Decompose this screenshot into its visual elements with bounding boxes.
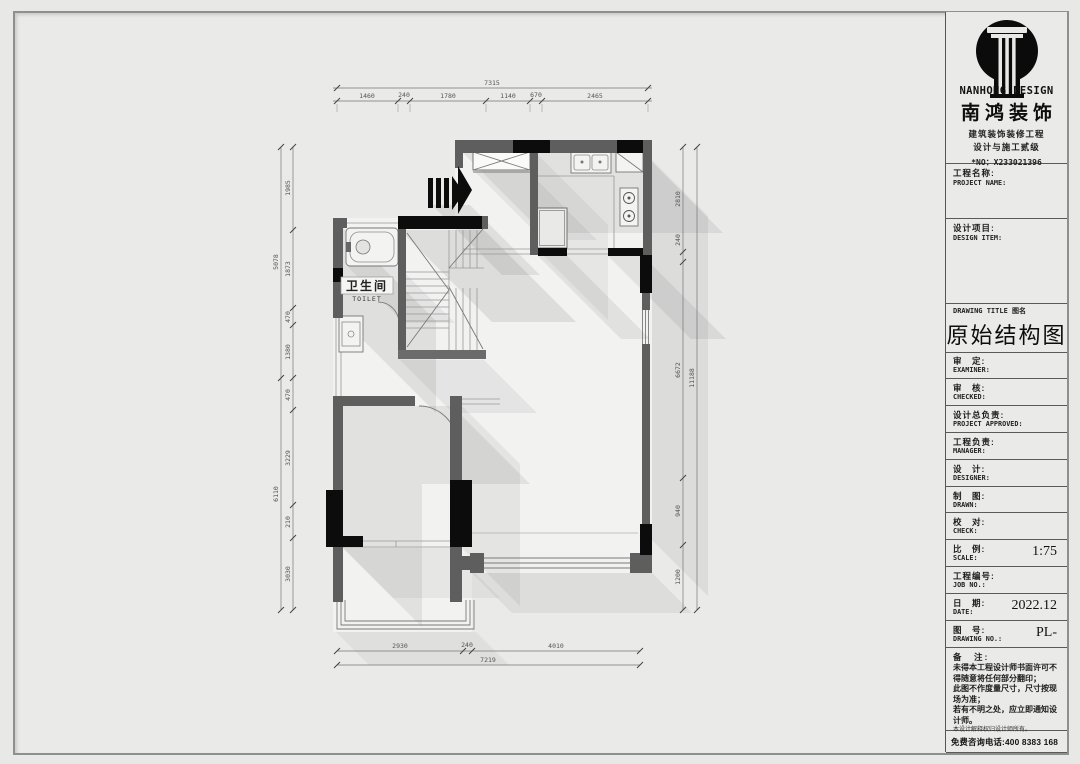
- dim-label: 670: [530, 91, 542, 99]
- design-item-section: 设计项目: DESIGN ITEM:: [946, 218, 1067, 304]
- row-drawn: 制 图: DRAWN:: [946, 487, 1067, 514]
- brand-name-cn: 南鸿装饰: [946, 98, 1067, 125]
- row-label-en: SCALE:: [953, 554, 978, 562]
- row-project-approved: 设计总负责: PROJECT APPROVED:: [946, 406, 1067, 433]
- row-job-no: 工程编号: JOB NO.:: [946, 567, 1067, 594]
- row-label-en: PROJECT APPROVED:: [953, 420, 1023, 428]
- brand-cert-line1: 建筑装饰装修工程: [946, 128, 1067, 140]
- design-item-label-en: DESIGN ITEM:: [953, 234, 1002, 242]
- row-label-en: DESIGNER:: [953, 474, 990, 482]
- notes-body: 未得本工程设计师书面许可不得随意将任何部分翻印； 此图不作度量尺寸，尺寸按现场为…: [953, 663, 1063, 735]
- dim-label: 1780: [440, 92, 456, 100]
- row-scale: 比 例: SCALE: 1:75: [946, 540, 1067, 567]
- dim-label: 5078: [272, 254, 280, 270]
- dim-label: 2465: [587, 92, 603, 100]
- row-label-en: CHECKED:: [953, 393, 986, 401]
- dim-label: 2810: [674, 191, 682, 207]
- row-label-en: MANAGER:: [953, 447, 986, 455]
- row-label-en: DRAWING NO.:: [953, 635, 1002, 643]
- row-examiner: 审 定: EXAMINER:: [946, 352, 1067, 379]
- row-label-en: JOB NO.:: [953, 581, 986, 589]
- dim-label: 240: [674, 234, 682, 246]
- row-label-en: EXAMINER:: [953, 366, 990, 374]
- dimension-left: 5078 6110 1985 1873 470 1380 470 3229 21…: [272, 144, 296, 613]
- row-value-date: 2022.12: [1012, 598, 1058, 614]
- corner-cabinet: [616, 152, 643, 172]
- dim-label: 7315: [484, 79, 500, 87]
- design-item-label-cn: 设计项目:: [953, 222, 995, 234]
- notes-section: 备 注: 未得本工程设计师书面许可不得随意将任何部分翻印； 此图不作度量尺寸，尺…: [946, 648, 1067, 731]
- dim-label: 6110: [272, 486, 280, 502]
- row-value-drawing-no: PL-: [1036, 625, 1057, 641]
- drawing-title-section: DRAWING TITLE 图名 原始结构图: [946, 303, 1067, 353]
- dim-label: 240: [461, 641, 473, 649]
- hotline-number: 免费咨询电话:400 8383 168: [951, 736, 1058, 748]
- bathtub: [346, 228, 398, 266]
- dim-label: 940: [674, 505, 682, 517]
- kitchen-cabinet: [537, 208, 567, 248]
- row-label-en: CHECK:: [953, 527, 978, 535]
- dim-label: 6672: [674, 362, 682, 378]
- drawing-title: 原始结构图: [946, 318, 1067, 350]
- dimension-top: 7315 1460 240 1780 1140 670 2465: [333, 79, 652, 112]
- title-block: NANHONG DESIGN 南鸿装饰 建筑装饰装修工程 设计与施工贰级 *NO…: [945, 12, 1067, 752]
- kitchen-sink: [571, 152, 611, 173]
- brand-cert-line2: 设计与施工贰级: [946, 141, 1067, 153]
- note-line: 此图不作度量尺寸，尺寸按现场为准；: [953, 684, 1063, 705]
- flue-box: [473, 152, 530, 172]
- dim-label: 1380: [284, 344, 292, 360]
- row-label-en: DRAWN:: [953, 501, 978, 509]
- row-manager: 工程负责: MANAGER:: [946, 433, 1067, 460]
- dim-label: 1200: [674, 569, 682, 585]
- brand-name-en: NANHONG DESIGN: [946, 85, 1067, 97]
- dim-label: 240: [398, 91, 410, 99]
- dim-label: 1873: [284, 261, 292, 277]
- room-label-en: TOILET: [352, 295, 381, 303]
- notes-title: 备 注:: [953, 651, 989, 663]
- dim-label: 1985: [284, 180, 292, 196]
- note-line: 未得本工程设计师书面许可不得随意将任何部分翻印；: [953, 663, 1063, 684]
- drawing-title-label: DRAWING TITLE 图名: [953, 306, 1026, 316]
- brand-section: NANHONG DESIGN 南鸿装饰 建筑装饰装修工程 设计与施工贰级 *NO…: [946, 12, 1067, 164]
- row-check: 校 对: CHECK:: [946, 513, 1067, 540]
- row-designer: 设 计: DESIGNER:: [946, 460, 1067, 487]
- dim-label: 1140: [500, 92, 516, 100]
- bathroom-vanity: [339, 316, 363, 352]
- title-block-rows: 审 定: EXAMINER: 审 核: CHECKED: 设计总负责: PROJ…: [946, 352, 1067, 648]
- dim-label: 7219: [480, 656, 496, 664]
- drawing-sheet: 卫生间 TOILET 7315 1460 240 1780 1140 670 2…: [0, 0, 1080, 764]
- dim-label: 11188: [688, 368, 696, 388]
- dim-label: 470: [284, 389, 292, 401]
- project-name-label-en: PROJECT NAME:: [953, 179, 1006, 187]
- row-value-scale: 1:75: [1032, 544, 1057, 560]
- dim-label: 210: [284, 516, 292, 528]
- hotline-section: 免费咨询电话:400 8383 168: [946, 730, 1067, 753]
- dim-label: 470: [284, 311, 292, 323]
- floor-plan: 卫生间 TOILET 7315 1460 240 1780 1140 670 2…: [0, 0, 945, 764]
- project-name-section: 工程名称: PROJECT NAME:: [946, 163, 1067, 219]
- row-label-en: DATE:: [953, 608, 973, 616]
- dim-label: 3030: [284, 566, 292, 582]
- note-line: 若有不明之处，应立即通知设计师。: [953, 705, 1063, 726]
- room-label-cn: 卫生间: [346, 278, 388, 293]
- row-date: 日 期: DATE: 2022.12: [946, 594, 1067, 621]
- row-checked: 审 核: CHECKED:: [946, 379, 1067, 406]
- dim-label: 1460: [359, 92, 375, 100]
- dim-label: 3229: [284, 450, 292, 466]
- dim-label: 2930: [392, 642, 408, 650]
- gas-stove: [620, 188, 638, 226]
- dim-label: 4010: [548, 642, 564, 650]
- project-name-label-cn: 工程名称:: [953, 167, 995, 179]
- row-drawing-no: 图 号: DRAWING NO.: PL-: [946, 621, 1067, 648]
